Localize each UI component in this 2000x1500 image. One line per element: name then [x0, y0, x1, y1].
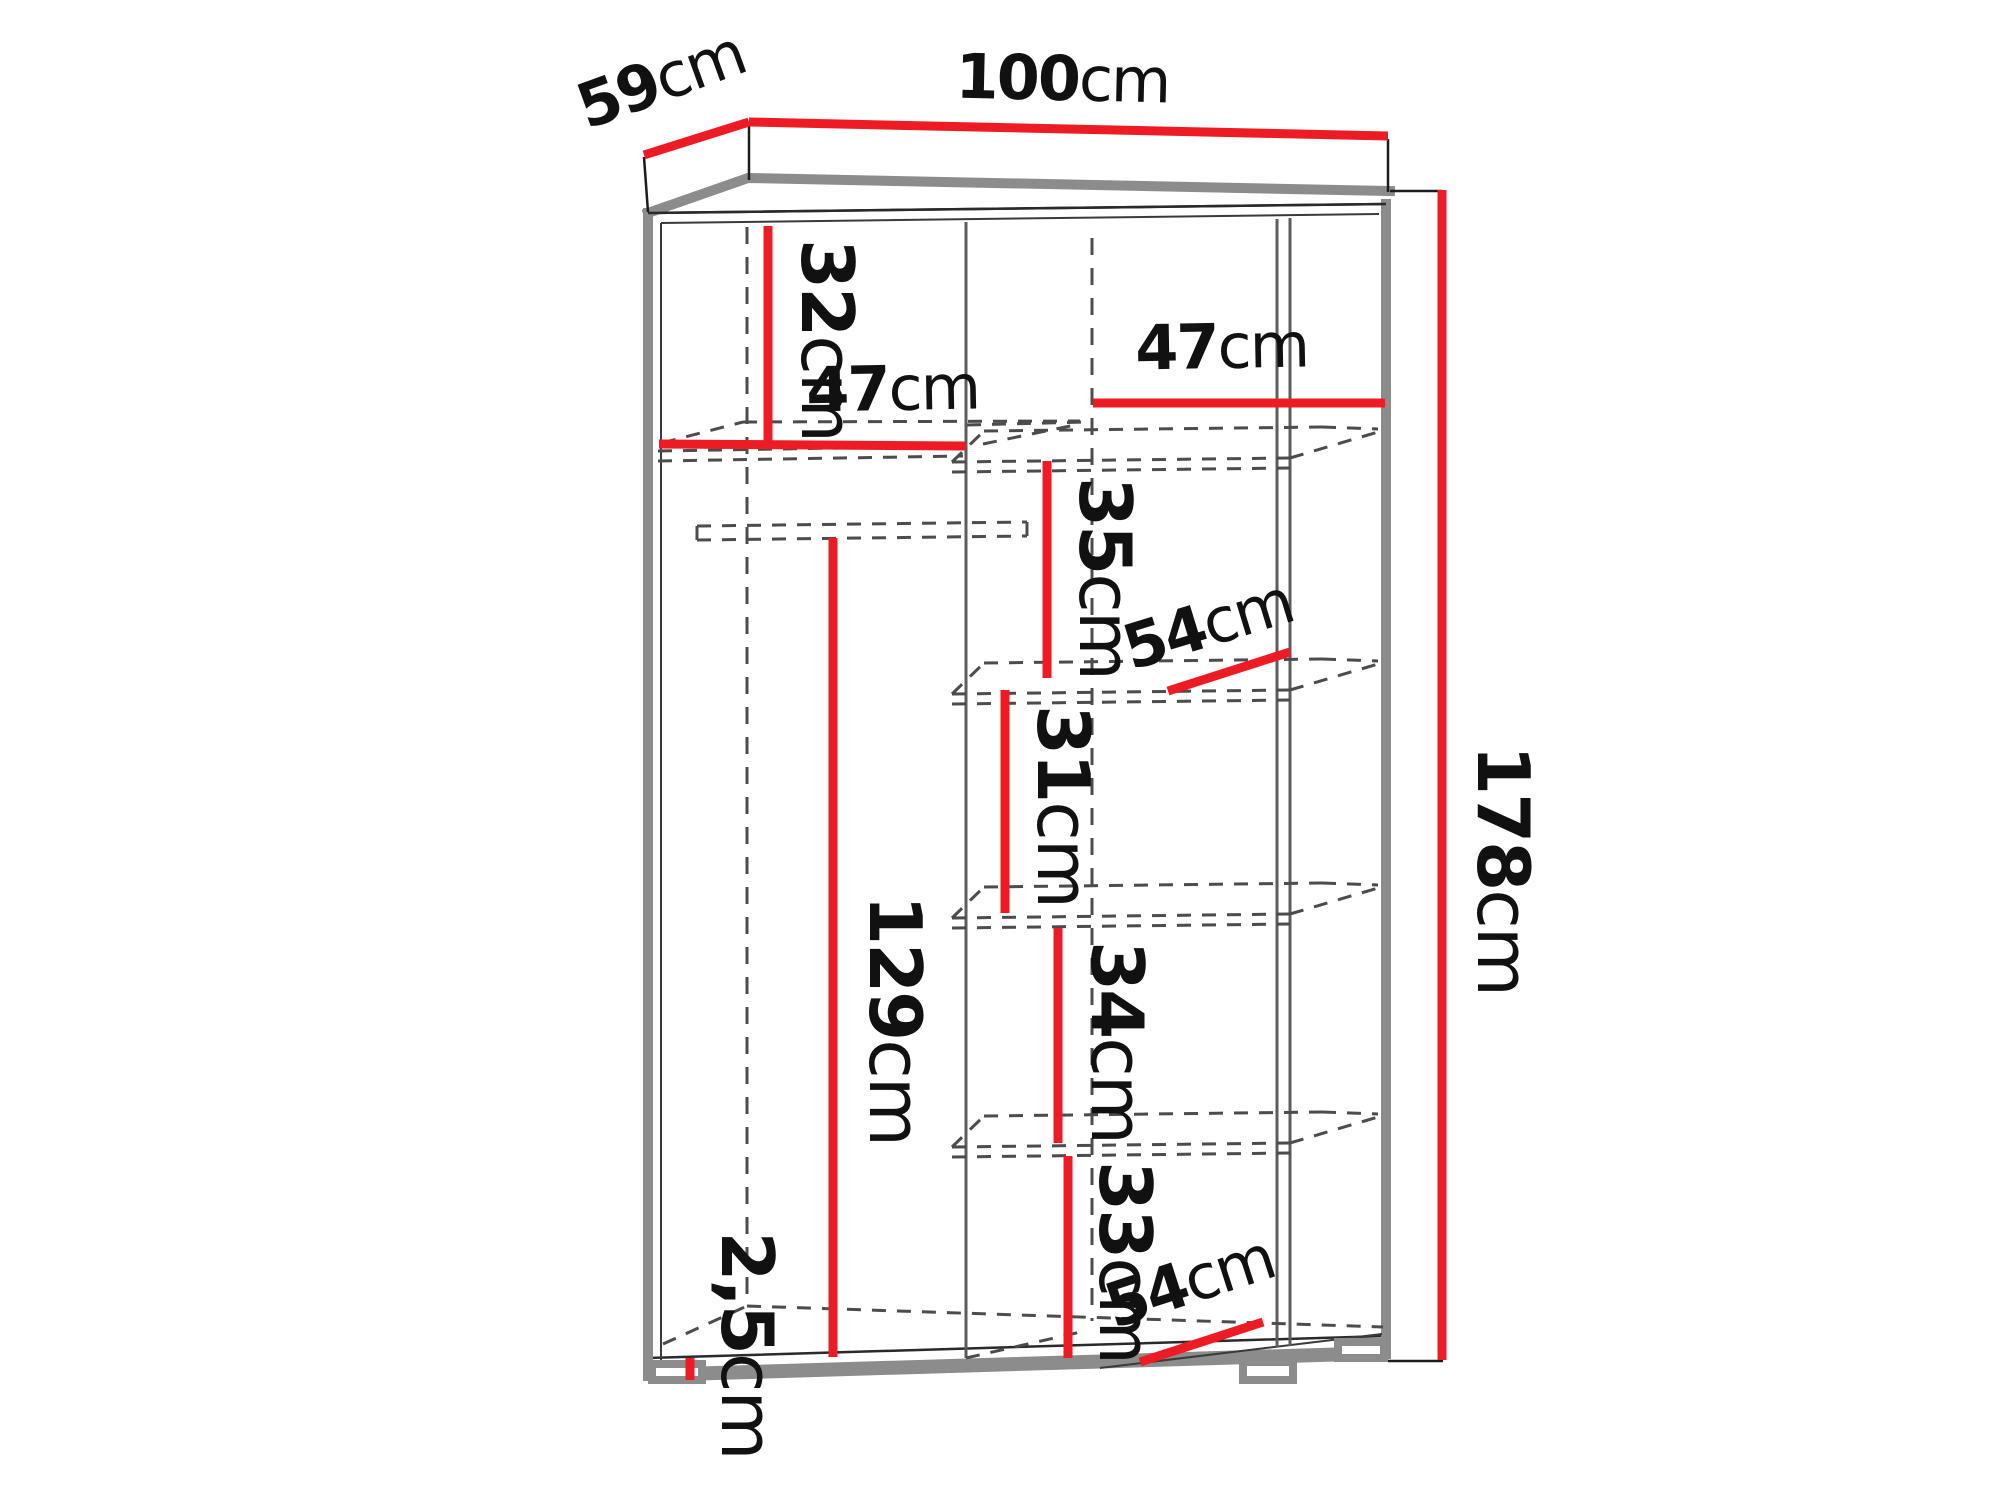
dim-width-100-label: 100cm [955, 40, 1171, 118]
dim-plinth-2-5-label: 2,5cm [705, 1231, 789, 1458]
dim-left-bay-47-label: 47cm [806, 351, 980, 427]
dim-width-100-line [749, 122, 1388, 136]
foot-front-right [1243, 1362, 1293, 1380]
dim-right-bay-47-label: 47cm [1135, 309, 1309, 385]
dim-depth-59-line [644, 122, 749, 155]
diagram-canvas: 100cm 59cm 178cm 32cm 47cm 47cm 35cm 54c… [0, 0, 2000, 1500]
dim-left-bay-47-line [659, 444, 966, 446]
ext-line-depth [644, 157, 648, 212]
dim-height-178-label: 178cm [1461, 745, 1545, 995]
dim-gap-34-label: 34cm [1075, 941, 1159, 1143]
dim-depth-59: 59cm [567, 16, 754, 155]
wardrobe-dimension-drawing: 100cm 59cm 178cm 32cm 47cm 47cm 35cm 54c… [0, 0, 2000, 1500]
dim-height-178: 178cm [1442, 190, 1545, 1360]
dim-gap-31-label: 31cm [1021, 705, 1105, 907]
dim-width-100: 100cm [749, 40, 1388, 136]
foot-back-right [1338, 1342, 1384, 1358]
dim-hanging-129-label: 129cm [853, 895, 937, 1145]
